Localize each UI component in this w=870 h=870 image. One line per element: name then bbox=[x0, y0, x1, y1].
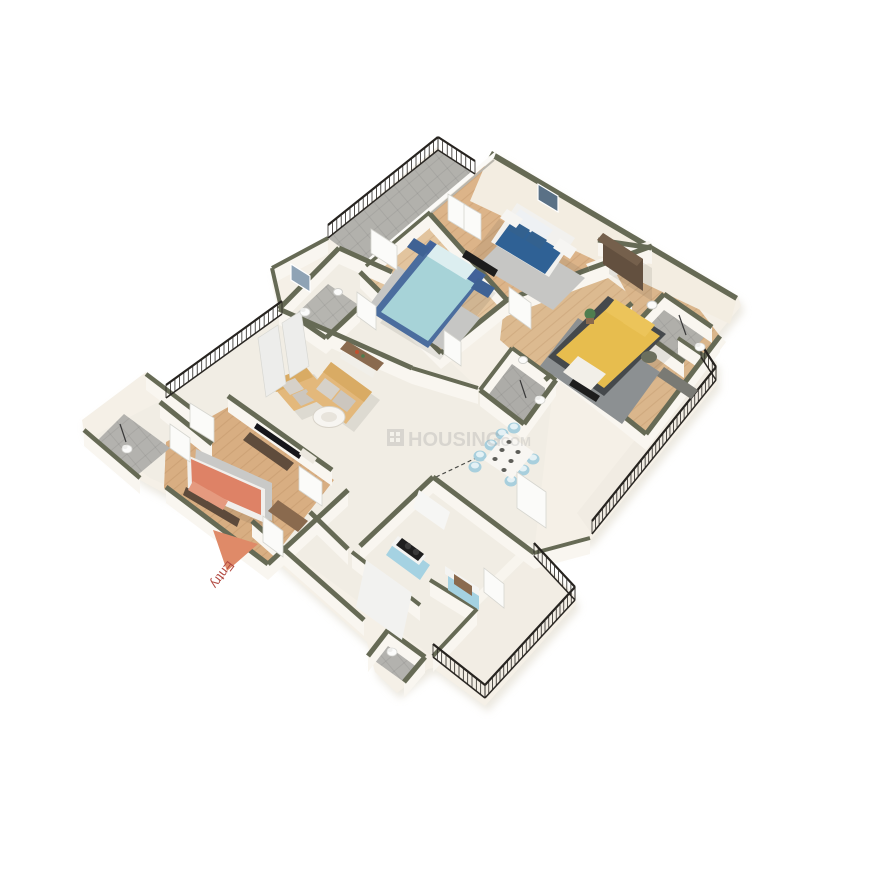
svg-text:.COM: .COM bbox=[497, 434, 531, 449]
svg-text:Entry: Entry bbox=[207, 558, 238, 592]
svg-text:HOUSING: HOUSING bbox=[408, 429, 501, 451]
